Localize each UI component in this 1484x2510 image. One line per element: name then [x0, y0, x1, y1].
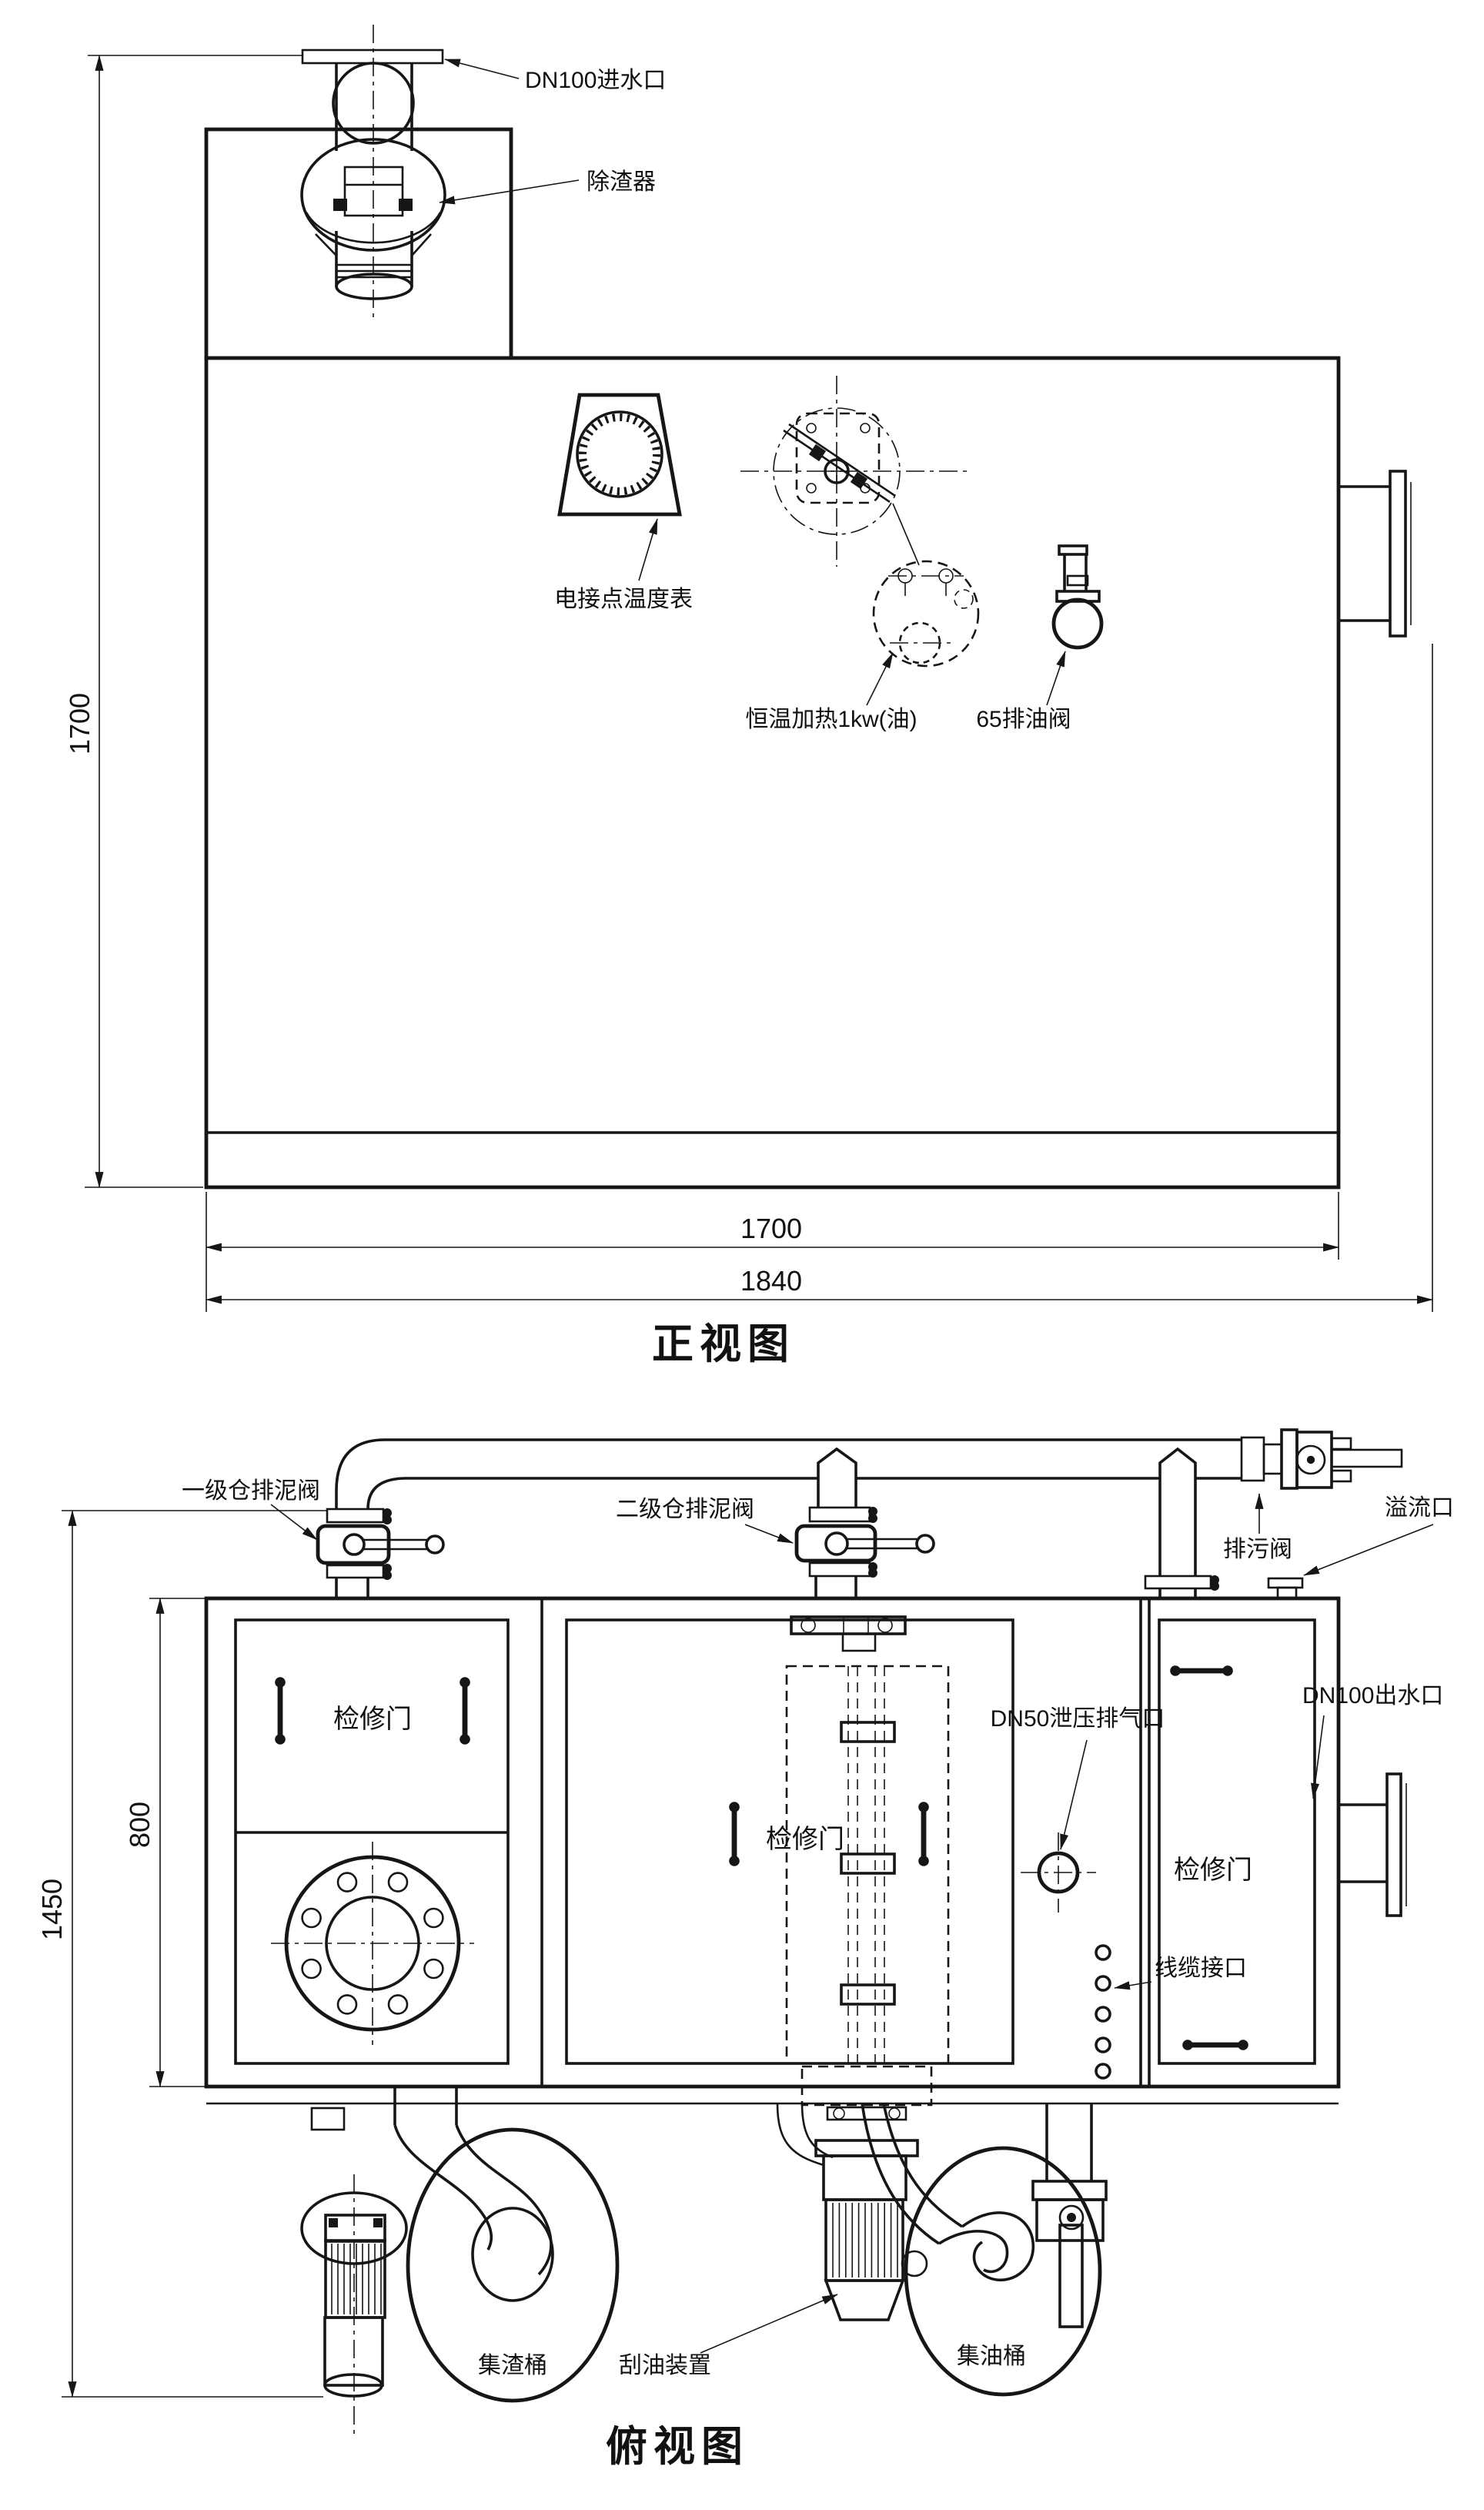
drawing-sheet: 1700 1700 1840 DN100进水口 除渣器 电接点温度表 恒温加热1… — [0, 0, 1484, 2510]
dim-overall-width: 1840 — [740, 1265, 802, 1297]
label-cable-port: 线缆接口 — [1155, 1956, 1247, 1981]
thermometer-dial — [577, 412, 662, 497]
front-view-title: 正视图 — [652, 1321, 795, 1367]
label-door-left: 检修门 — [333, 1705, 412, 1734]
slag-remover-assembly — [302, 25, 445, 320]
label-heater: 恒温加热1kw(油) — [745, 707, 917, 732]
label-oil-bucket: 集油桶 — [957, 2344, 1026, 2369]
outlet-top — [1339, 1774, 1406, 1916]
primary-mud-valve — [318, 1508, 443, 1598]
secondary-mud-valve — [797, 1449, 934, 1598]
chute-end — [473, 2208, 553, 2301]
label-slag-remover: 除渣器 — [587, 169, 656, 195]
label-primary-mud-valve: 一级仓排泥阀 — [182, 1478, 320, 1504]
top-piping — [318, 1430, 1402, 1598]
cad-drawing: 1700 1700 1840 DN100进水口 除渣器 电接点温度表 恒温加热1… — [0, 0, 1484, 2510]
thermometer — [560, 395, 680, 514]
scraper-flight — [841, 1985, 894, 2004]
dim-inner-width: 1700 — [740, 1213, 802, 1244]
oil-drain-valve — [1054, 546, 1101, 648]
outlet-stub-front — [1339, 471, 1411, 636]
dial-ticks — [583, 417, 657, 491]
cable-port-hole — [1096, 2064, 1110, 2078]
scraper-flight — [841, 1854, 894, 1873]
dimensions-top: 800 1450 — [36, 1511, 326, 2397]
label-oil-scraper: 刮油装置 — [619, 2353, 711, 2378]
vent-strip — [1021, 1832, 1110, 2078]
riser-pipe — [1145, 1449, 1219, 1598]
top-view: 检修门 — [36, 1430, 1454, 2470]
label-oil-drain-valve: 65排油阀 — [976, 707, 1071, 732]
top-view-title: 俯视图 — [606, 2424, 749, 2470]
dimensions-front: 1700 1700 1840 — [64, 55, 1432, 1312]
label-door-right: 检修门 — [1174, 1856, 1252, 1885]
inlet-flange — [302, 50, 443, 63]
scraper-flight — [841, 1722, 894, 1742]
overflow-fitting — [1268, 1578, 1302, 1598]
label-blowdown-valve: 排污阀 — [1223, 1537, 1292, 1562]
bottom-equipment — [302, 2067, 1106, 2436]
right-compartment: 检修门 — [1159, 1620, 1315, 2063]
cable-port-hole — [1096, 2038, 1110, 2052]
valve-body — [1054, 600, 1101, 648]
heater — [874, 561, 978, 666]
blowdown-valve — [1242, 1430, 1402, 1488]
front-view: 1700 1700 1840 DN100进水口 除渣器 电接点温度表 恒温加热1… — [64, 25, 1432, 1367]
oil-bucket-valve — [1033, 2103, 1106, 2327]
dim-depth: 800 — [124, 1802, 155, 1848]
labels-front: DN100进水口 除渣器 电接点温度表 恒温加热1kw(油) 65排油阀 正视图 — [440, 59, 1071, 1367]
valve-handle — [1332, 1450, 1402, 1467]
label-slag-bucket: 集渣桶 — [478, 2353, 547, 2378]
dim-height: 1700 — [64, 693, 95, 755]
tank-front — [206, 129, 1339, 1187]
scraper-motor — [777, 2067, 931, 2320]
label-overflow-port: 溢流口 — [1385, 1495, 1454, 1521]
center-compartment: 检修门 — [567, 1617, 1013, 2063]
cable-port-hole — [1096, 1946, 1110, 1959]
label-outlet: DN100出水口 — [1302, 1683, 1443, 1708]
label-secondary-mud-valve: 二级仓排泥阀 — [616, 1497, 754, 1522]
dim-overall-height: 1450 — [36, 1879, 68, 1940]
label-relief-vent: DN50泄压排气口 — [991, 1706, 1165, 1732]
cable-port-hole — [1096, 2007, 1110, 2021]
slag-motor — [302, 2108, 406, 2436]
label-inlet: DN100进水口 — [525, 68, 666, 93]
label-door-center: 检修门 — [766, 1825, 844, 1854]
outlet-flange — [1390, 471, 1405, 636]
label-thermometer: 电接点温度表 — [554, 587, 693, 612]
cable-port-hole — [1096, 1976, 1110, 1990]
heater-flange — [740, 376, 970, 567]
left-compartment: 检修门 — [236, 1620, 508, 2063]
